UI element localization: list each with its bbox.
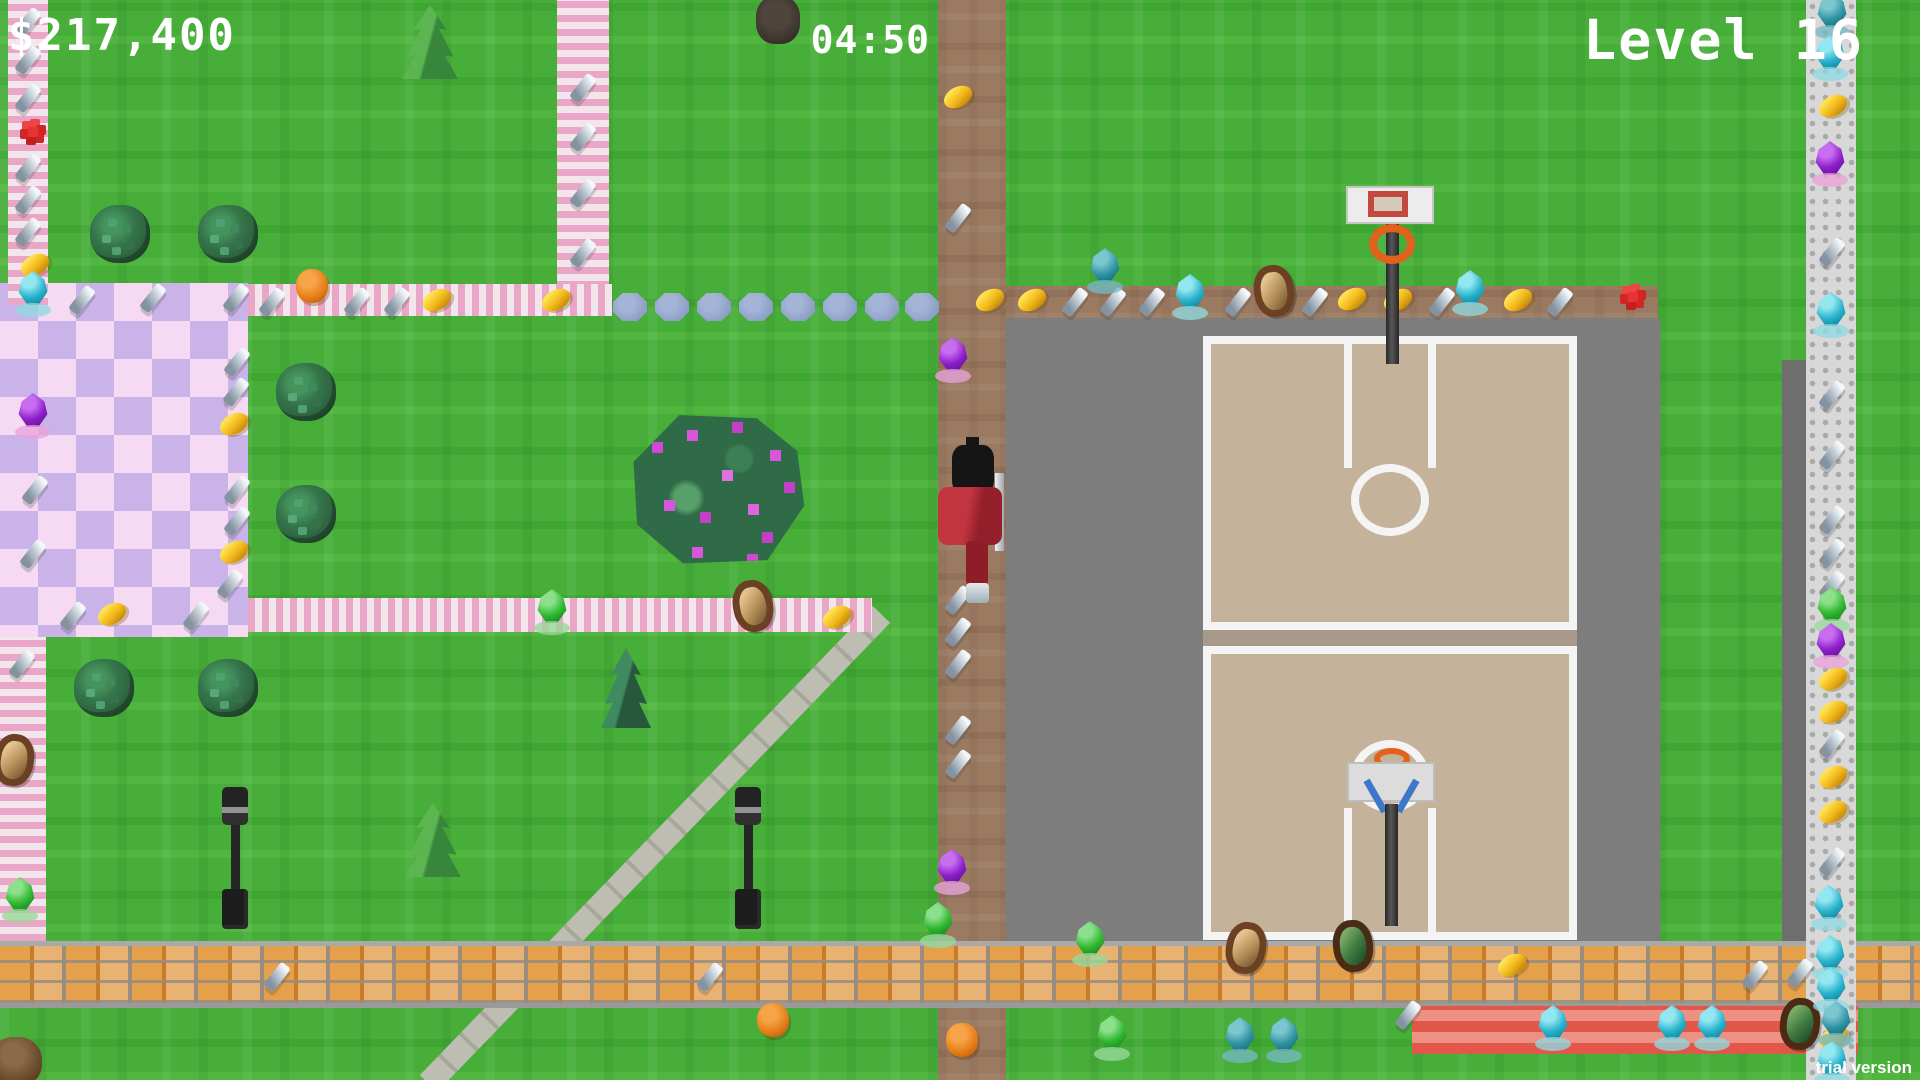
- screw: [1818, 846, 1846, 877]
- screw: [569, 177, 597, 208]
- gem-cyan: [1173, 274, 1207, 320]
- screw: [1138, 286, 1166, 317]
- coin: [94, 598, 130, 630]
- pine: [405, 803, 461, 877]
- screw: [14, 184, 42, 215]
- screw: [222, 282, 250, 313]
- coin: [419, 284, 455, 316]
- bush: [198, 659, 258, 717]
- screw: [8, 648, 36, 679]
- screw: [19, 538, 47, 569]
- backboard-icon: [1347, 762, 1435, 802]
- screw: [263, 961, 291, 992]
- gem-purple: [1813, 141, 1847, 187]
- bush: [74, 659, 134, 717]
- screw: [1818, 728, 1846, 759]
- lamp: [734, 787, 762, 929]
- screw: [1818, 504, 1846, 535]
- player-character: [936, 443, 1008, 605]
- game-world[interactable]: $217,400 04:50 Level 16 trial version: [0, 0, 1920, 1080]
- gem-cyan: [1655, 1005, 1689, 1051]
- coin: [1500, 284, 1536, 316]
- gem-cyan: [1812, 885, 1846, 931]
- player-body: [938, 487, 1002, 545]
- coin: [1494, 949, 1530, 981]
- screw: [1818, 439, 1846, 470]
- screw: [569, 72, 597, 103]
- coin: [940, 81, 976, 113]
- screw: [222, 376, 250, 407]
- screw: [1224, 286, 1252, 317]
- coin: [216, 408, 252, 440]
- gem-green: [1073, 921, 1107, 967]
- gem-green: [535, 589, 569, 635]
- screw: [68, 284, 96, 315]
- coin: [1014, 284, 1050, 316]
- timer: 04:50: [700, 18, 930, 62]
- gem-purple: [1814, 623, 1848, 669]
- screw: [1818, 537, 1846, 568]
- screw: [1818, 379, 1846, 410]
- screw: [944, 748, 972, 779]
- screw: [216, 568, 244, 599]
- trunk-brown: [0, 1037, 42, 1080]
- coin: [1815, 90, 1851, 122]
- screw: [258, 286, 286, 317]
- painting-tan: [1251, 262, 1298, 319]
- screw: [1786, 957, 1814, 988]
- gem-green: [3, 877, 37, 923]
- gem-cyan: [1814, 292, 1848, 338]
- screw: [21, 474, 49, 505]
- painting-tan: [1222, 919, 1270, 977]
- bush: [276, 485, 336, 543]
- backboard-icon: [1346, 186, 1434, 224]
- pumpkin: [946, 1023, 978, 1057]
- screw: [1394, 999, 1422, 1030]
- screw: [944, 616, 972, 647]
- player-shoe: [966, 583, 989, 603]
- gem-cyan: [1453, 270, 1487, 316]
- screw: [569, 121, 597, 152]
- pumpkin: [296, 269, 328, 303]
- gem-purple: [935, 849, 969, 895]
- trial-version-label: trial version: [1816, 1058, 1912, 1078]
- screw: [223, 474, 251, 505]
- bush: [276, 363, 336, 421]
- coin: [1815, 696, 1851, 728]
- flower-red: [1628, 292, 1638, 302]
- gem-purple: [16, 393, 50, 439]
- hoop-rim-icon: [1369, 224, 1415, 264]
- gem-cyan: [1536, 1005, 1570, 1051]
- gem-green: [1095, 1015, 1129, 1061]
- stone: [865, 293, 899, 321]
- stone: [739, 293, 773, 321]
- bush: [90, 205, 150, 263]
- screw: [944, 648, 972, 679]
- pine-dark: [601, 648, 651, 728]
- stone: [781, 293, 815, 321]
- gem-teal: [1267, 1017, 1301, 1063]
- hoop-pole-icon: [1385, 804, 1398, 926]
- coin: [1815, 796, 1851, 828]
- basketball-hoop-bottom: [1346, 748, 1436, 928]
- coin: [538, 284, 574, 316]
- screw: [1818, 236, 1846, 267]
- screw: [59, 600, 87, 631]
- gem-purple: [936, 337, 970, 383]
- pine: [402, 5, 458, 79]
- painting-tan: [729, 577, 777, 635]
- screw: [1301, 286, 1329, 317]
- screw: [14, 152, 42, 183]
- screw: [383, 286, 411, 317]
- screw: [696, 961, 724, 992]
- level-indicator: Level 16: [1583, 8, 1864, 72]
- gem-green: [921, 902, 955, 948]
- screw: [223, 346, 251, 377]
- lamp: [221, 787, 249, 929]
- screw: [944, 714, 972, 745]
- screw: [569, 237, 597, 268]
- basketball-hoop-top: [1346, 186, 1436, 336]
- coin: [216, 536, 252, 568]
- screw: [944, 202, 972, 233]
- screw: [343, 286, 371, 317]
- gem-teal: [1088, 248, 1122, 294]
- gem-teal: [1223, 1017, 1257, 1063]
- pumpkin: [757, 1003, 789, 1037]
- stone: [905, 293, 939, 321]
- player-leg: [966, 541, 988, 585]
- painting-tan: [0, 731, 37, 788]
- gem-cyan: [16, 271, 50, 317]
- screw: [223, 505, 251, 536]
- gem-cyan: [1695, 1005, 1729, 1051]
- screw: [1546, 286, 1574, 317]
- coin: [1815, 761, 1851, 793]
- money-counter: $217,400: [8, 10, 236, 61]
- coin: [972, 284, 1008, 316]
- bush: [198, 205, 258, 263]
- flower-red: [28, 127, 38, 137]
- stone: [697, 293, 731, 321]
- flower-bush: [630, 412, 806, 568]
- screw: [182, 600, 210, 631]
- stone: [613, 293, 647, 321]
- stone: [655, 293, 689, 321]
- stone: [823, 293, 857, 321]
- screw: [1061, 286, 1089, 317]
- screw: [139, 282, 167, 313]
- screw: [1741, 959, 1769, 990]
- screw: [14, 82, 42, 113]
- screw: [14, 216, 42, 247]
- coin: [819, 601, 855, 633]
